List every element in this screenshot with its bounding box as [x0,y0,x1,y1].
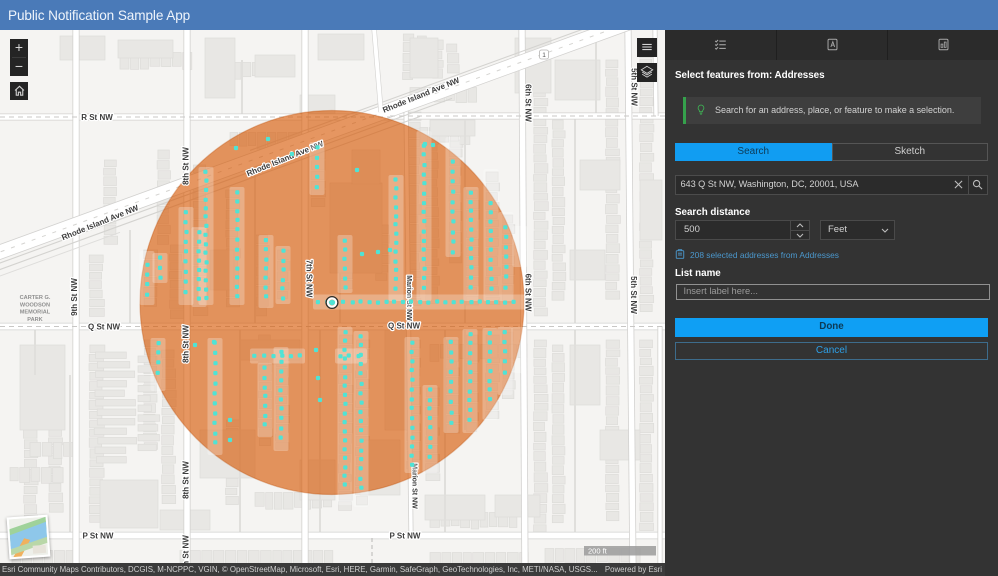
svg-text:Q St NW: Q St NW [388,322,420,331]
svg-text:P St NW: P St NW [83,532,114,541]
svg-text:9th St NW: 9th St NW [70,278,79,316]
svg-text:8th St NW: 8th St NW [182,147,191,185]
svg-text:CARTER G.: CARTER G. [20,295,51,301]
svg-text:PARK: PARK [27,317,42,323]
svg-text:MEMORIAL: MEMORIAL [20,310,51,316]
svg-text:P St NW: P St NW [390,532,421,541]
svg-text:WOODSON: WOODSON [20,302,50,308]
svg-text:1: 1 [542,52,546,59]
svg-text:6th St NW: 6th St NW [524,84,533,122]
svg-text:8th St NW: 8th St NW [182,461,191,499]
svg-text:5th St NW: 5th St NW [629,276,638,314]
svg-text:200 ft: 200 ft [588,547,608,556]
svg-text:Q St NW: Q St NW [88,323,120,332]
svg-text:8th St NW: 8th St NW [182,325,191,363]
svg-text:R St NW: R St NW [81,113,113,122]
svg-text:7th St NW: 7th St NW [305,260,314,298]
